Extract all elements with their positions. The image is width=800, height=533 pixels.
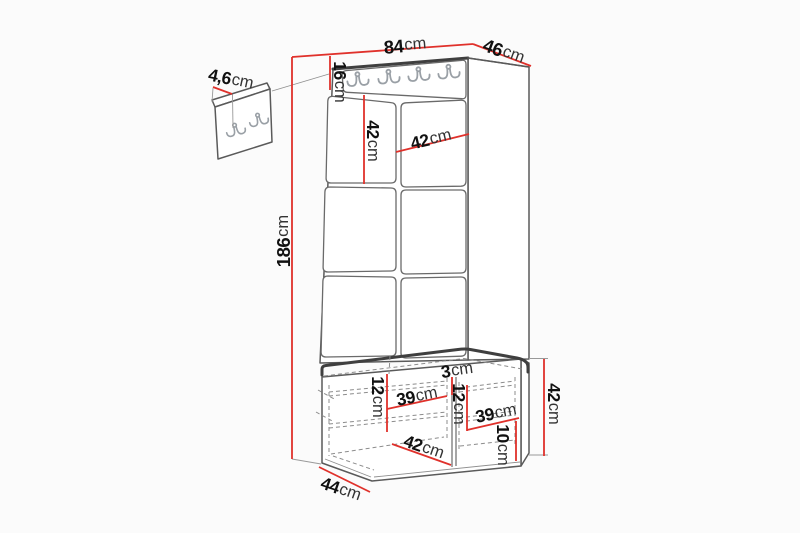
dim-label-total-height: 186cm: [273, 215, 294, 267]
main-unit: [320, 58, 529, 363]
panel-cell: [321, 276, 396, 357]
dim-label-shelf-spacing-left: 12cm: [368, 376, 388, 417]
unit-side-face: [468, 58, 529, 360]
panel-cell: [401, 277, 466, 358]
dim-label-bench-height: 42cm: [544, 383, 564, 424]
dim-label-shelf-spacing-right: 12cm: [449, 383, 469, 424]
panel-cell: [323, 187, 396, 272]
panel-cell: [326, 96, 396, 183]
dim-label-left-panel-height: 42cm: [363, 120, 383, 161]
diagram-canvas: 84cm 46cm 16cm 42cm 42cm 186cm 4,6cm 3cm…: [0, 0, 800, 533]
dim-label-rail-height: 16cm: [330, 61, 350, 102]
bench-side-face: [521, 359, 529, 466]
furniture-dimension-diagram: 84cm 46cm 16cm 42cm 42cm 186cm 4,6cm 3cm…: [0, 0, 800, 533]
panel-cell: [401, 190, 466, 274]
dim-label-plinth-height: 10cm: [493, 424, 513, 465]
